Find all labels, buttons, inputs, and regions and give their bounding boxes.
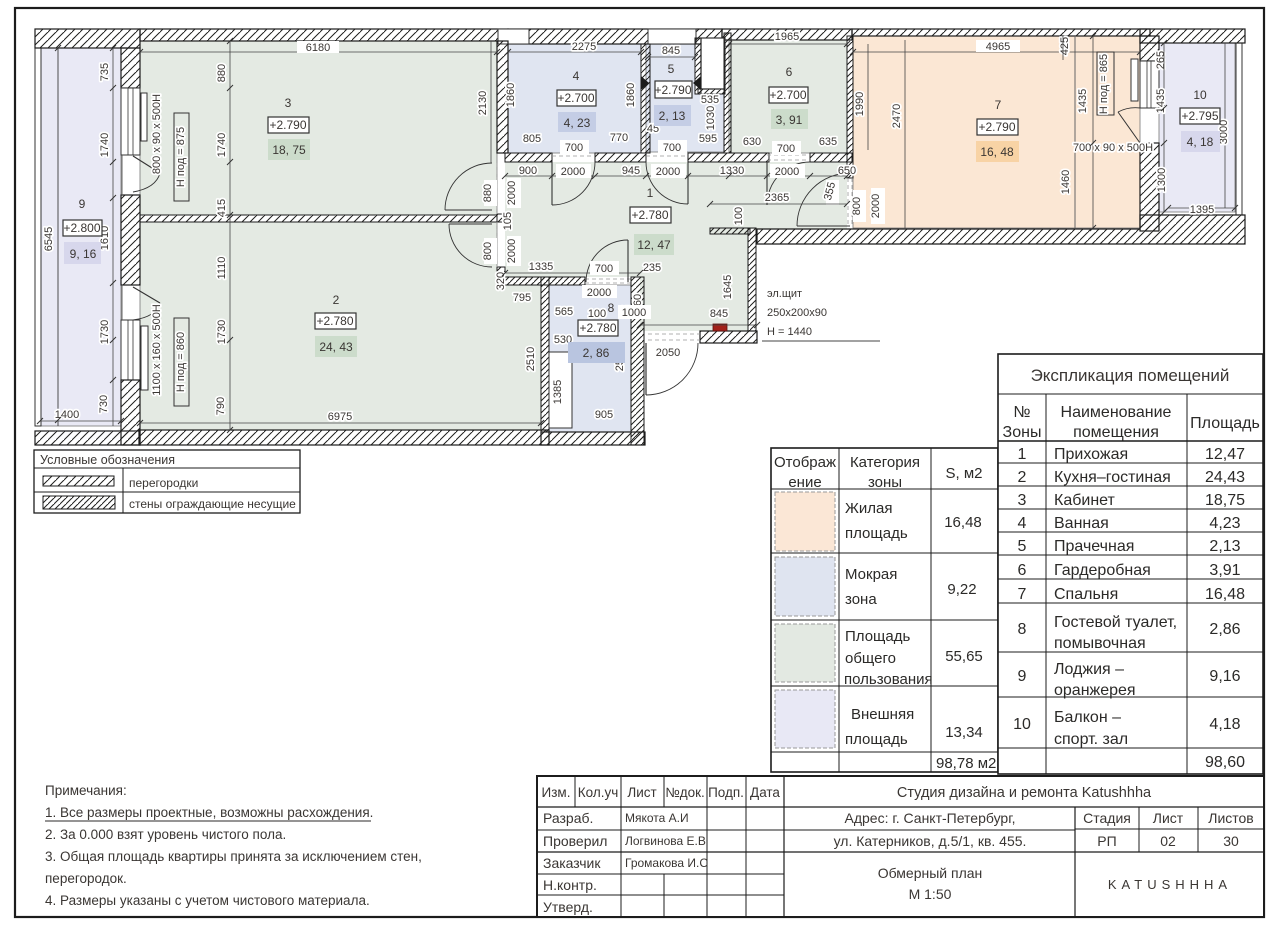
svg-text:Листов: Листов [1208, 810, 1254, 826]
svg-text:2470: 2470 [891, 104, 903, 128]
svg-text:Подп.: Подп. [708, 785, 744, 800]
svg-text:спорт. зал: спорт. зал [1054, 731, 1128, 748]
svg-text:2, 86: 2, 86 [583, 346, 610, 360]
svg-text:+2.790: +2.790 [978, 120, 1015, 134]
svg-text:9: 9 [1018, 668, 1027, 685]
svg-text:4965: 4965 [986, 41, 1010, 53]
svg-text:2,86: 2,86 [1209, 621, 1240, 638]
svg-text:1730: 1730 [99, 320, 111, 344]
svg-text:Площадь: Площадь [1190, 415, 1260, 432]
svg-text:+2.780: +2.780 [316, 314, 353, 328]
svg-text:700: 700 [565, 142, 583, 154]
svg-text:4, 23: 4, 23 [564, 116, 591, 130]
svg-text:7: 7 [1018, 586, 1027, 603]
svg-text:Стадия: Стадия [1083, 810, 1131, 826]
svg-text:3, 91: 3, 91 [776, 113, 803, 127]
svg-text:98,78 м2: 98,78 м2 [936, 755, 996, 772]
svg-text:30: 30 [1223, 833, 1239, 849]
svg-text:9, 16: 9, 16 [70, 247, 97, 261]
svg-text:4: 4 [1018, 515, 1027, 532]
svg-text:Логвинова Е.В: Логвинова Е.В [625, 834, 706, 848]
svg-text:Студия дизайна и ремонта Katus: Студия дизайна и ремонта Katushhha [897, 785, 1152, 801]
svg-text:Н = 1440: Н = 1440 [767, 326, 812, 338]
svg-text:1990: 1990 [854, 92, 866, 116]
svg-text:2000: 2000 [587, 287, 611, 299]
svg-text:+2.790: +2.790 [269, 118, 306, 132]
svg-text:зоны: зоны [868, 474, 902, 491]
svg-text:Гардеробная: Гардеробная [1054, 562, 1151, 579]
svg-text:+2.790: +2.790 [654, 83, 691, 97]
svg-text:1. Все размеры проектные, возм: 1. Все размеры проектные, возможны расхо… [45, 805, 373, 820]
svg-text:10: 10 [1013, 716, 1031, 733]
svg-text:3: 3 [1018, 492, 1027, 509]
svg-text:1740: 1740 [99, 133, 111, 157]
svg-text:+2.700: +2.700 [557, 91, 594, 105]
svg-text:595: 595 [699, 133, 717, 145]
svg-text:Н под = 865: Н под = 865 [1098, 54, 1110, 114]
svg-text:2000: 2000 [870, 194, 882, 218]
svg-text:+2.795: +2.795 [1181, 109, 1218, 123]
svg-text:9,16: 9,16 [1209, 668, 1240, 685]
svg-text:эл.щит: эл.щит [767, 288, 802, 300]
svg-text:3,91: 3,91 [1209, 562, 1240, 579]
svg-text:Адрес: г. Санкт-Петербург,: Адрес: г. Санкт-Петербург, [844, 810, 1015, 826]
svg-text:700: 700 [595, 263, 613, 275]
svg-text:Лист: Лист [627, 785, 656, 800]
svg-text:8: 8 [608, 301, 615, 315]
svg-text:4: 4 [573, 69, 580, 83]
svg-text:1300: 1300 [1156, 168, 1168, 192]
svg-text:265: 265 [1155, 51, 1167, 69]
svg-text:перегородки: перегородки [129, 476, 198, 490]
svg-text:2. За 0.000 взят уровень чисто: 2. За 0.000 взят уровень чистого пола. [45, 827, 286, 842]
svg-text:Прачечная: Прачечная [1054, 538, 1134, 555]
svg-text:Площадь: Площадь [845, 628, 910, 645]
svg-text:9,22: 9,22 [947, 581, 976, 598]
svg-text:12,47: 12,47 [1205, 446, 1245, 463]
svg-text:общего: общего [845, 650, 896, 667]
svg-text:880: 880 [482, 184, 494, 202]
svg-text:Лоджия –: Лоджия – [1054, 661, 1124, 678]
svg-text:М 1:50: М 1:50 [909, 886, 952, 902]
svg-text:1645: 1645 [722, 275, 734, 299]
svg-text:Обмерный план: Обмерный план [878, 865, 983, 881]
svg-text:700: 700 [663, 142, 681, 154]
svg-text:4,18: 4,18 [1209, 716, 1240, 733]
svg-text:2510: 2510 [525, 347, 537, 371]
svg-text:2000: 2000 [775, 166, 799, 178]
svg-text:18, 75: 18, 75 [272, 143, 306, 157]
svg-text:16, 48: 16, 48 [980, 145, 1014, 159]
svg-text:Громакова И.С: Громакова И.С [625, 856, 708, 870]
svg-text:S, м2: S, м2 [946, 465, 983, 482]
svg-text:6: 6 [786, 65, 793, 79]
svg-text:650: 650 [838, 165, 856, 177]
svg-text:16,48: 16,48 [944, 514, 982, 531]
svg-text:235: 235 [643, 262, 661, 274]
svg-text:1330: 1330 [720, 165, 744, 177]
svg-text:250х200х90: 250х200х90 [767, 307, 827, 319]
svg-text:1965: 1965 [775, 31, 799, 43]
svg-text:Гостевой туалет,: Гостевой туалет, [1054, 614, 1177, 631]
svg-text:4,23: 4,23 [1209, 515, 1240, 532]
svg-text:Мякота А.И: Мякота А.И [625, 811, 689, 825]
svg-text:помывочная: помывочная [1054, 635, 1146, 652]
svg-text:2000: 2000 [506, 181, 518, 205]
svg-text:105: 105 [502, 212, 514, 230]
svg-text:320: 320 [495, 272, 507, 290]
svg-text:2050: 2050 [656, 347, 680, 359]
svg-text:РП: РП [1097, 833, 1116, 849]
svg-text:перегородок.: перегородок. [45, 871, 127, 886]
svg-text:1860: 1860 [625, 83, 637, 107]
svg-text:1110: 1110 [216, 257, 228, 280]
svg-text:1100 x 160 x 500Н: 1100 x 160 x 500Н [151, 304, 163, 396]
svg-text:6545: 6545 [43, 227, 55, 251]
svg-text:98,60: 98,60 [1205, 754, 1245, 771]
svg-text:1395: 1395 [1190, 204, 1214, 216]
svg-text:730: 730 [98, 395, 110, 413]
svg-text:100: 100 [733, 207, 745, 225]
svg-text:Зоны: Зоны [1003, 424, 1042, 441]
svg-text:стены ограждающие несущие: стены ограждающие несущие [129, 497, 296, 511]
svg-text:800 x 90 x 500Н: 800 x 90 x 500Н [151, 94, 163, 174]
svg-text:3. Общая площадь квартиры прин: 3. Общая площадь квартиры принята за иск… [45, 849, 422, 864]
svg-text:3: 3 [285, 96, 292, 110]
svg-text:площадь: площадь [845, 731, 908, 748]
svg-text:5: 5 [668, 62, 675, 76]
svg-text:KATUSHHHA: KATUSHHHA [1108, 877, 1232, 892]
svg-text:415: 415 [216, 199, 228, 217]
svg-text:425: 425 [1059, 37, 1071, 55]
svg-text:6180: 6180 [306, 42, 330, 54]
svg-text:535: 535 [701, 94, 719, 106]
svg-text:1000: 1000 [622, 307, 646, 319]
svg-text:ение: ение [788, 474, 821, 491]
svg-text:770: 770 [610, 132, 628, 144]
svg-text:16,48: 16,48 [1205, 586, 1245, 603]
svg-text:Кол.уч: Кол.уч [578, 785, 619, 800]
svg-text:2000: 2000 [561, 166, 585, 178]
svg-text:1435: 1435 [1155, 89, 1167, 113]
svg-text:+2.800: +2.800 [63, 221, 100, 235]
svg-text:1860: 1860 [505, 83, 517, 107]
svg-text:Изм.: Изм. [542, 785, 571, 800]
svg-text:700 x 90 x 500Н: 700 x 90 x 500Н [1073, 142, 1153, 154]
svg-text:2: 2 [1018, 469, 1027, 486]
svg-text:№: № [1013, 404, 1030, 421]
svg-text:площадь: площадь [845, 525, 908, 542]
svg-text:4, 18: 4, 18 [1187, 135, 1214, 149]
svg-text:24, 43: 24, 43 [319, 340, 353, 354]
svg-text:100: 100 [588, 308, 606, 320]
svg-text:24,43: 24,43 [1205, 469, 1245, 486]
svg-text:635: 635 [819, 136, 837, 148]
svg-text:Балкон –: Балкон – [1054, 709, 1121, 726]
svg-text:18,75: 18,75 [1205, 492, 1245, 509]
svg-text:2,13: 2,13 [1209, 538, 1240, 555]
svg-text:Дата: Дата [750, 785, 780, 800]
svg-text:Прихожая: Прихожая [1054, 446, 1128, 463]
svg-text:795: 795 [513, 292, 531, 304]
svg-text:Наименование: Наименование [1061, 404, 1172, 421]
svg-text:+2.780: +2.780 [631, 208, 668, 222]
svg-text:800: 800 [482, 242, 494, 260]
svg-text:1335: 1335 [529, 261, 553, 273]
svg-text:845: 845 [662, 45, 680, 57]
svg-text:Экспликация помещений: Экспликация помещений [1031, 366, 1230, 385]
svg-text:2365: 2365 [765, 192, 789, 204]
svg-text:7: 7 [995, 98, 1002, 112]
svg-text:Н.контр.: Н.контр. [543, 877, 597, 893]
svg-text:805: 805 [523, 133, 541, 145]
svg-text:1: 1 [647, 186, 654, 200]
svg-text:Примечания:: Примечания: [45, 783, 127, 798]
svg-text:1: 1 [1018, 446, 1027, 463]
svg-text:Разраб.: Разраб. [543, 810, 593, 826]
svg-text:Утверд.: Утверд. [543, 899, 593, 915]
svg-text:зона: зона [845, 591, 877, 608]
svg-text:Н под = 860: Н под = 860 [175, 332, 187, 392]
svg-text:630: 630 [743, 136, 761, 148]
svg-text:1730: 1730 [216, 320, 228, 344]
svg-text:945: 945 [622, 165, 640, 177]
svg-text:Н под = 875: Н под = 875 [175, 127, 187, 187]
svg-text:2: 2 [333, 293, 340, 307]
svg-text:Отображ: Отображ [774, 454, 836, 471]
svg-text:700: 700 [777, 143, 795, 155]
svg-text:1385: 1385 [552, 380, 564, 404]
svg-text:5: 5 [1018, 538, 1027, 555]
svg-text:800: 800 [851, 197, 863, 215]
svg-text:Условные обозначения: Условные обозначения [40, 453, 175, 467]
svg-text:Кухня–гостиная: Кухня–гостиная [1054, 469, 1171, 486]
svg-text:565: 565 [555, 306, 573, 318]
svg-text:13,34: 13,34 [945, 724, 983, 741]
svg-text:6: 6 [1018, 562, 1027, 579]
svg-text:4. Размеры указаны с учетом чи: 4. Размеры указаны с учетом чистового ма… [45, 893, 370, 908]
svg-text:2, 13: 2, 13 [659, 109, 686, 123]
svg-text:+2.700: +2.700 [769, 88, 806, 102]
svg-text:Проверил: Проверил [543, 833, 607, 849]
svg-text:55,65: 55,65 [945, 648, 983, 665]
svg-text:Кабинет: Кабинет [1054, 492, 1116, 509]
svg-text:790: 790 [215, 397, 227, 415]
svg-text:2275: 2275 [572, 41, 596, 53]
svg-text:735: 735 [99, 63, 111, 81]
svg-text:2000: 2000 [656, 166, 680, 178]
svg-text:+2.780: +2.780 [579, 321, 616, 335]
svg-text:Категория: Категория [850, 454, 920, 471]
svg-text:помещения: помещения [1073, 424, 1159, 441]
svg-text:Жилая: Жилая [845, 500, 892, 517]
svg-text:1740: 1740 [216, 133, 228, 157]
svg-text:пользования: пользования [844, 671, 933, 688]
svg-text:8: 8 [1018, 621, 1027, 638]
svg-text:1435: 1435 [1077, 89, 1089, 113]
svg-text:880: 880 [216, 64, 228, 82]
svg-text:2000: 2000 [506, 239, 518, 263]
svg-text:ул. Катерников, д.5/1, кв. 455: ул. Катерников, д.5/1, кв. 455. [834, 833, 1027, 849]
svg-text:1030: 1030 [705, 106, 717, 130]
svg-text:2130: 2130 [477, 91, 489, 115]
svg-text:9: 9 [79, 197, 86, 211]
svg-text:02: 02 [1160, 833, 1176, 849]
svg-text:оранжерея: оранжерея [1054, 682, 1136, 699]
svg-text:Заказчик: Заказчик [543, 855, 601, 871]
svg-text:Лист: Лист [1153, 810, 1184, 826]
svg-text:12, 47: 12, 47 [637, 238, 671, 252]
svg-text:Ванная: Ванная [1054, 515, 1109, 532]
svg-text:905: 905 [595, 409, 613, 421]
svg-text:Мокрая: Мокрая [845, 566, 897, 583]
svg-text:Внешняя: Внешняя [851, 706, 914, 723]
svg-text:Спальня: Спальня [1054, 586, 1118, 603]
svg-text:900: 900 [519, 165, 537, 177]
svg-text:10: 10 [1193, 88, 1207, 102]
svg-text:6975: 6975 [328, 411, 352, 423]
svg-text:1460: 1460 [1060, 170, 1072, 194]
svg-text:№док.: №док. [665, 785, 705, 800]
svg-text:845: 845 [710, 308, 728, 320]
